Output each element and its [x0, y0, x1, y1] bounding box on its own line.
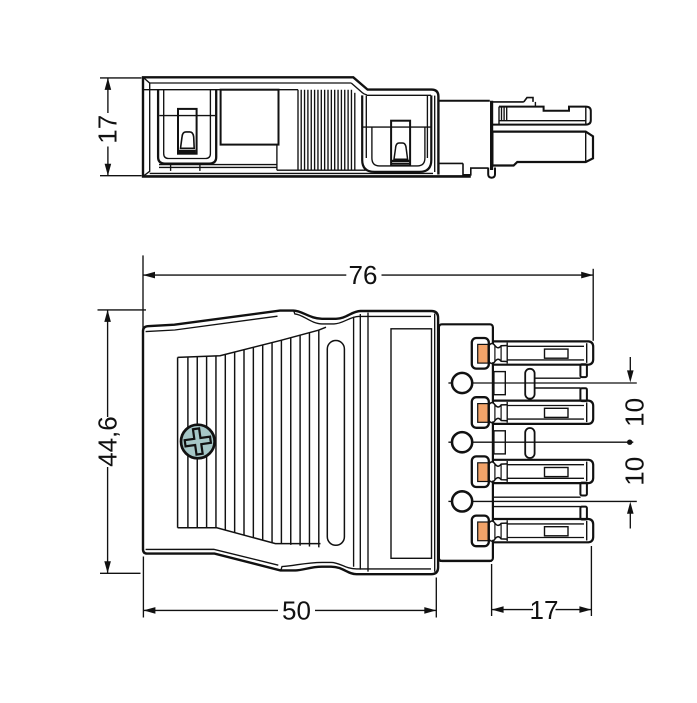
svg-text:76: 76 [349, 260, 378, 290]
svg-text:44,6: 44,6 [92, 416, 122, 467]
svg-text:17: 17 [93, 115, 123, 144]
svg-text:10: 10 [620, 398, 650, 427]
svg-text:50: 50 [282, 596, 311, 626]
svg-text:17: 17 [530, 595, 559, 625]
svg-text:10: 10 [620, 457, 650, 486]
